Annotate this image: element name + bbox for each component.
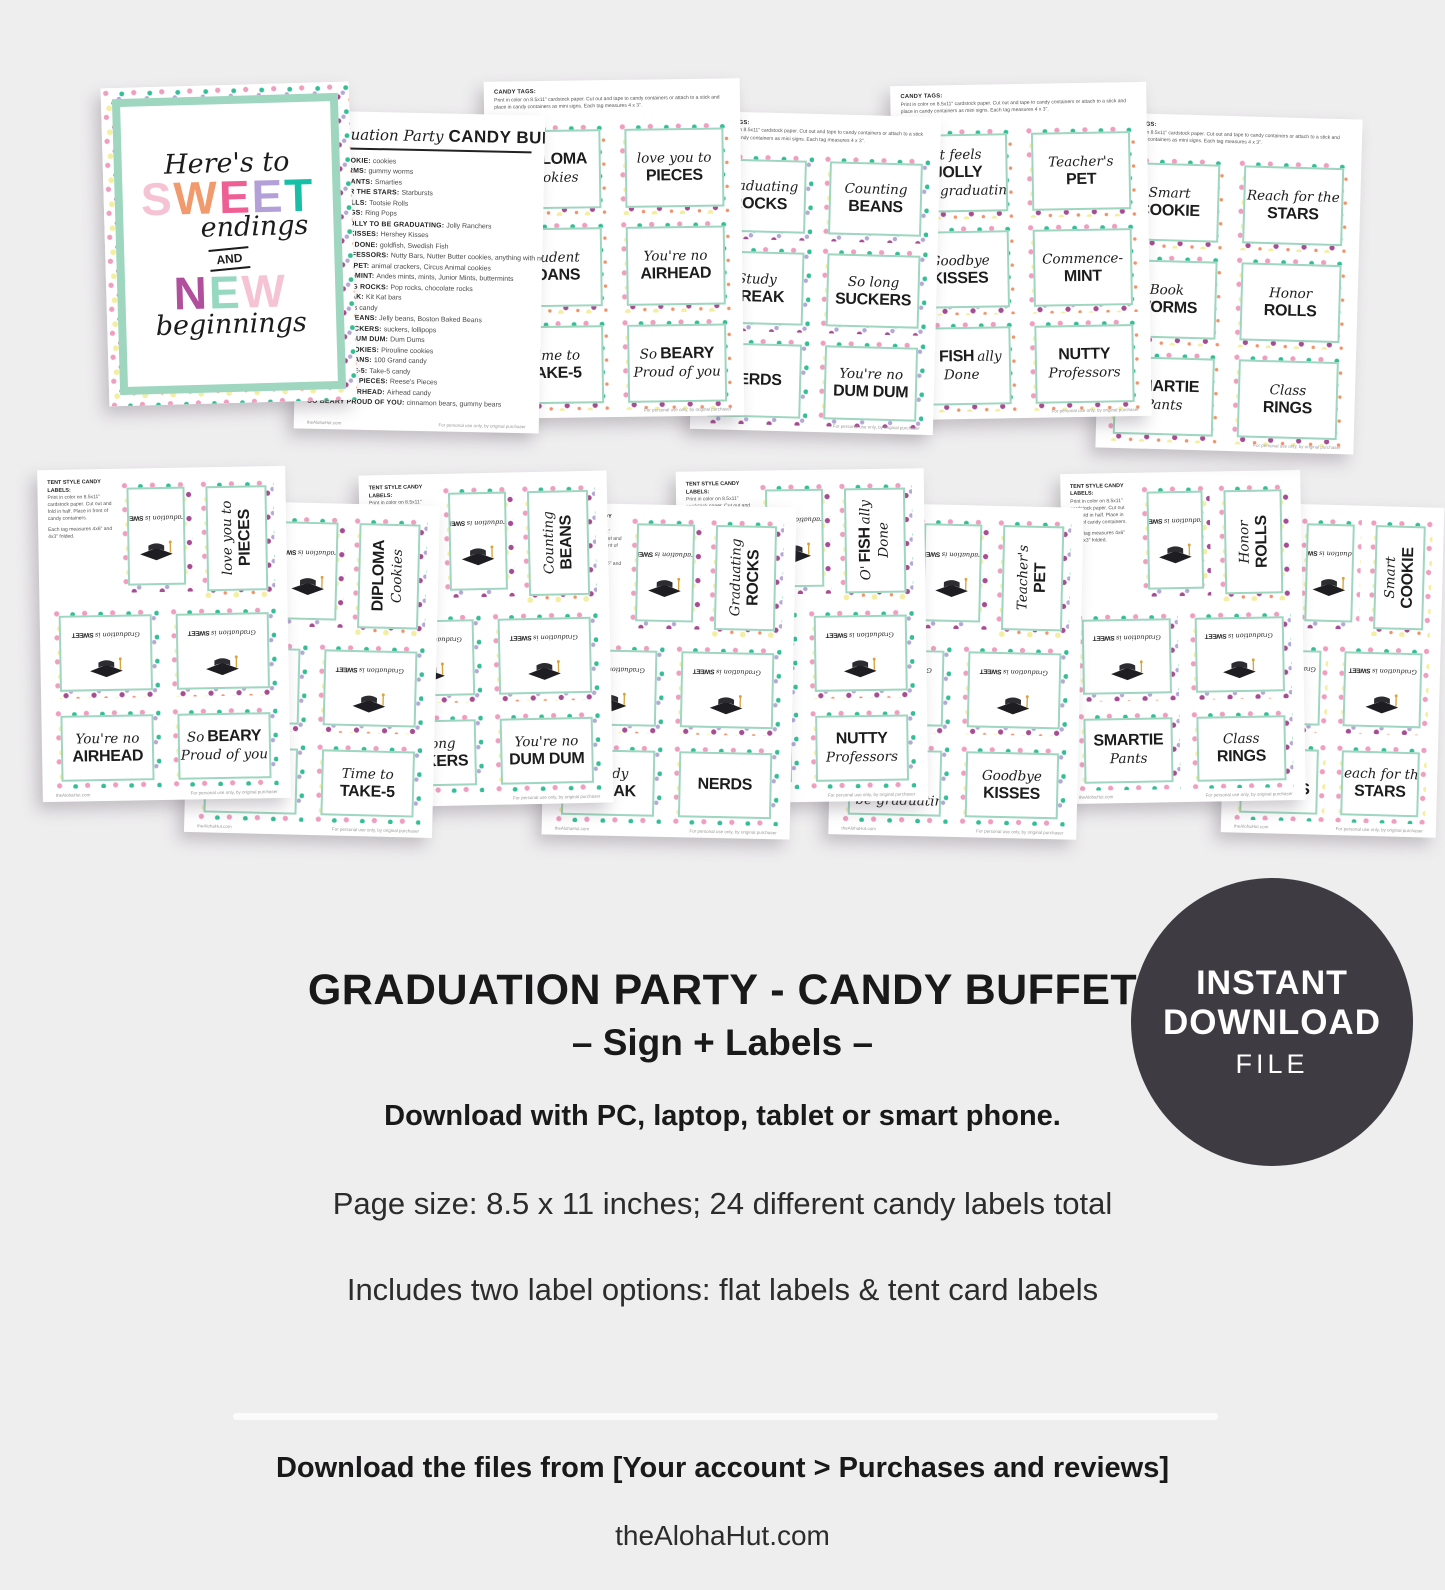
candy-label-face: Reach for theSTARS xyxy=(1340,750,1420,817)
candy-label-face: DIPLOMACookies xyxy=(357,523,420,630)
candy-label-stars: Reach for theSTARS xyxy=(1235,158,1351,253)
candy-label-counting-beans: CountingBEANS xyxy=(821,154,930,244)
candy-label-graduating-rocks: GraduatingROCKS xyxy=(707,517,784,638)
graduation-cap-icon xyxy=(205,646,242,676)
candy-label-dum-dum: You're noDUM DUM xyxy=(816,338,925,428)
tent-labels-page-7: TENT STYLE CANDY LABELS:Print in color o… xyxy=(1060,470,1306,804)
candy-label-love-you-to-pieces: love you toPIECES xyxy=(198,478,274,599)
badge-line-1: INSTANT xyxy=(1196,964,1348,1003)
candy-label-ofishally: O'FISHallyDone xyxy=(837,480,913,601)
page-footer-license: For personal use only, by original purch… xyxy=(1206,791,1293,798)
candy-label-face: Teacher'sPET xyxy=(1031,131,1131,211)
candy-label-face: ClassRINGS xyxy=(1237,359,1339,440)
candy-label-face: Time toTAKE-5 xyxy=(320,749,414,817)
candy-label-teachers-pet: Teacher'sPET xyxy=(1024,124,1138,218)
candy-label-so-beary: SoBEARYProud of you xyxy=(170,705,278,787)
candy-label-class-rings: ClassRINGS xyxy=(1230,352,1346,447)
candy-label-honor-rolls: HonorROLLS xyxy=(1216,482,1290,602)
page-footer-license: For personal use only, by original purch… xyxy=(976,828,1063,835)
graduation-cap-icon xyxy=(646,568,683,599)
tent-card-back: Graduation is SWEET xyxy=(807,608,915,699)
instant-download-badge: INSTANT DOWNLOAD FILE xyxy=(1131,878,1413,1166)
candy-label-teachers-pet: Teacher'sPET xyxy=(994,517,1071,638)
sign-word-and: AND xyxy=(208,246,250,272)
tent-card-back: Graduation is SWEET xyxy=(490,610,598,702)
candy-tags-instructions: CANDY TAGS:Print in color on 8.5x11" car… xyxy=(900,89,1136,116)
page-footer-license: For personal use only, by original purch… xyxy=(828,791,915,797)
page-footer-site: theAlohaHut.com xyxy=(841,825,876,831)
label-options-line: Includes two label options: flat labels … xyxy=(0,1272,1445,1308)
graduation-sign: Here's toSWEETendingsANDNEWbeginnings xyxy=(112,93,346,395)
tent-card-back: Graduation is SWEET xyxy=(1297,516,1362,630)
product-listing-image: Here's toSWEETendingsANDNEWbeginningsGra… xyxy=(0,0,1445,1590)
candy-label-smart-cookie: SmartCOOKIE xyxy=(1366,517,1434,637)
candy-label-face: CountingBEANS xyxy=(828,161,923,237)
tent-card-back: Graduation is SWEET xyxy=(915,516,989,630)
graduation-cap-icon xyxy=(1222,649,1259,679)
graduation-cap-icon xyxy=(842,649,878,679)
divider-line xyxy=(233,1413,1218,1420)
page-footer-license: For personal use only, by original purch… xyxy=(1336,826,1423,833)
candy-label-dum-dum: You're noDUM DUM xyxy=(492,710,600,792)
tent-card-back: Graduation is SWEET xyxy=(119,479,193,593)
candy-label-face: HonorROLLS xyxy=(1240,262,1342,343)
candy-label-nutty: NUTTYProfessors xyxy=(808,707,916,788)
page-footer-site: theAlohaHut.com xyxy=(307,420,342,426)
shop-website: theAlohaHut.com xyxy=(0,1520,1445,1552)
page-footer-license: For personal use only, by original purch… xyxy=(1052,407,1139,414)
page-footer-license: For personal use only, by original purch… xyxy=(513,794,600,801)
candy-label-class-rings: ClassRINGS xyxy=(1189,708,1294,789)
tent-card-back: Graduation is SWEET xyxy=(628,516,702,630)
graduation-cap-icon xyxy=(351,684,388,715)
graduation-cap-icon xyxy=(1109,651,1146,681)
page-size-line: Page size: 8.5 x 11 inches; 24 different… xyxy=(0,1186,1445,1222)
badge-line-2: DOWNLOAD xyxy=(1163,1003,1381,1043)
tent-labels-page-1: TENT STYLE CANDY LABELS:Print in color o… xyxy=(37,466,291,802)
graduation-cap-icon xyxy=(708,686,745,717)
sign-page: Here's toSWEETendingsANDNEWbeginnings xyxy=(101,82,358,407)
candy-label-diploma-cookies: DIPLOMACookies xyxy=(350,516,427,637)
candy-label-face: Commence-MINT xyxy=(1033,228,1133,308)
graduation-cap-icon xyxy=(138,531,175,561)
candy-label-face: SmartCOOKIE xyxy=(1373,525,1426,631)
candy-label-face: SoBEARYProud of you xyxy=(627,323,727,403)
tent-card-back: Graduation is SWEET xyxy=(1140,483,1212,596)
candy-tags-instructions: CANDY TAGS:Print in color on 8.5x11" car… xyxy=(1114,120,1352,150)
candy-label-counting-beans: CountingBEANS xyxy=(520,482,597,603)
page-footer-license: For personal use only, by original purch… xyxy=(644,406,731,412)
graduation-cap-icon xyxy=(995,686,1032,717)
candy-label-face: O'FISHallyDone xyxy=(844,487,906,593)
candy-label-time-to-take5: Time toTAKE-5 xyxy=(313,742,422,824)
candy-label-face: SoBEARYProud of you xyxy=(177,712,271,779)
graduation-cap-icon xyxy=(933,568,970,599)
candy-label-face: HonorROLLS xyxy=(1223,489,1283,595)
page-footer-license: For personal use only, by original purch… xyxy=(332,827,419,834)
tent-card-back: Graduation is SWEET xyxy=(168,605,276,696)
graduation-cap-icon xyxy=(88,649,125,679)
tent-card-back: Graduation is SWEET xyxy=(1335,644,1430,735)
candy-label-youre-no-airhead: You're noAIRHEAD xyxy=(619,218,733,312)
tent-card-back: Graduation is SWEET xyxy=(1187,609,1292,700)
graduation-cap-icon xyxy=(527,651,564,682)
page-footer-license: For personal use only, by original purch… xyxy=(1253,443,1340,450)
candy-label-face: GraduatingROCKS xyxy=(714,525,777,632)
graduation-cap-icon xyxy=(1157,535,1194,565)
candy-label-so-long-suckers: So longSUCKERS xyxy=(819,246,928,336)
sign-line-beginnings: beginnings xyxy=(155,309,307,340)
candy-label-stars: Reach for theSTARS xyxy=(1333,743,1427,825)
candy-tags-instructions: CANDY TAGS:Print in color on 8.5x11" car… xyxy=(707,118,931,147)
candy-label-face: You're noDUM DUM xyxy=(500,717,594,785)
candy-label-nerds: NERDS xyxy=(671,744,779,826)
candy-label-so-beary: SoBEARYProud of you xyxy=(620,316,734,410)
tent-labels-instructions: TENT STYLE CANDY LABELS:Print in color o… xyxy=(47,479,113,541)
candy-label-face: SMARTIEPants xyxy=(1083,717,1173,784)
candy-label-love-you-to-pieces: love you toPIECES xyxy=(617,120,731,214)
page-footer-license: For personal use only, by original purch… xyxy=(689,828,776,835)
candy-label-youre-no-airhead: You're noAIRHEAD xyxy=(54,707,162,789)
candy-label-face: NERDS xyxy=(678,751,772,819)
tent-card-back: Graduation is SWEET xyxy=(315,643,424,735)
candy-label-face: ClassRINGS xyxy=(1196,715,1286,782)
candy-tags-instructions: CANDY TAGS:Print in color on 8.5x11" car… xyxy=(494,86,730,112)
page-footer-site: theAlohaHut.com xyxy=(1234,823,1269,829)
sign-line-endings: endings xyxy=(200,212,309,242)
badge-line-3: FILE xyxy=(1235,1049,1308,1080)
candy-label-face: So longSUCKERS xyxy=(826,253,921,329)
candy-label-face: You're noAIRHEAD xyxy=(61,714,155,781)
candy-label-face: Reach for theSTARS xyxy=(1242,165,1344,246)
tent-card-back: Graduation is SWEET xyxy=(1075,611,1180,702)
candy-label-commence-mint: Commence-MINT xyxy=(1026,221,1140,315)
candy-label-honor-rolls: HonorROLLS xyxy=(1232,255,1348,350)
download-instructions: Download the files from [Your account > … xyxy=(0,1452,1445,1485)
graduation-cap-icon xyxy=(290,566,327,597)
candy-label-face: Teacher'sPET xyxy=(1001,525,1064,632)
candy-label-goodbye-kisses: GoodbyeKISSES xyxy=(957,744,1065,826)
graduation-cap-icon xyxy=(1364,685,1401,716)
graduation-cap-icon xyxy=(460,536,497,567)
page-footer-license: For personal use only, by original purch… xyxy=(833,424,920,431)
candy-label-face: You're noAIRHEAD xyxy=(626,225,726,305)
graduation-cap-icon xyxy=(1311,568,1348,599)
tent-card-back: Graduation is SWEET xyxy=(441,484,515,598)
candy-label-face: You're noDUM DUM xyxy=(824,345,919,421)
candy-label-face: love you toPIECES xyxy=(624,128,724,208)
candy-label-nutty: NUTTYProfessors xyxy=(1027,317,1141,411)
page-footer-site: theAlohaHut.com xyxy=(555,826,590,832)
page-footer-site: theAlohaHut.com xyxy=(1079,794,1114,800)
page-footer-license: For personal use only, by original purch… xyxy=(191,789,278,796)
candy-label-face: love you toPIECES xyxy=(206,485,268,592)
candy-label-smartie-pants: SMARTIEPants xyxy=(1076,710,1181,791)
candy-label-face: NUTTYProfessors xyxy=(1034,325,1134,405)
tent-card-back: Graduation is SWEET xyxy=(673,645,781,737)
tent-card-back: Graduation is SWEET xyxy=(960,645,1069,737)
candy-label-face: GoodbyeKISSES xyxy=(965,751,1059,819)
page-footer-site: theAlohaHut.com xyxy=(56,792,91,798)
candy-label-face: CountingBEANS xyxy=(527,489,590,596)
candy-label-face: NUTTYProfessors xyxy=(815,715,909,782)
tent-card-back: Graduation is SWEET xyxy=(52,608,160,699)
page-footer-site: theAlohaHut.com xyxy=(197,823,232,829)
